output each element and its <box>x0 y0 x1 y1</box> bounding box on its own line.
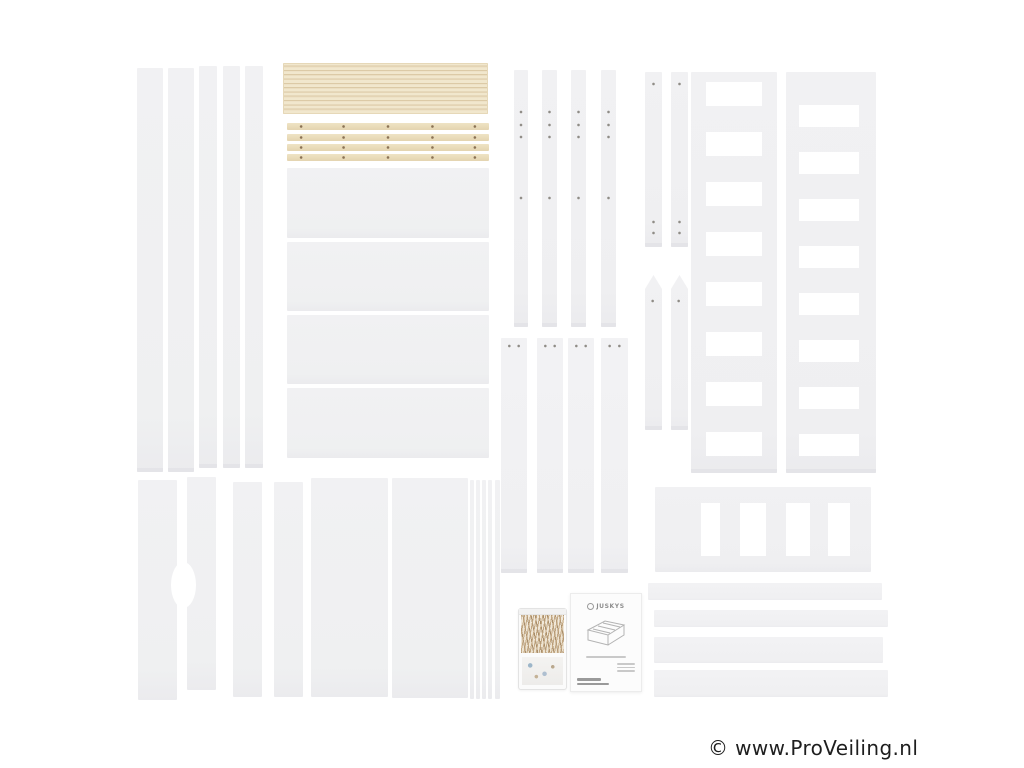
rail-opening <box>740 503 766 556</box>
slat-rail <box>287 123 489 130</box>
oval-grip-cutout <box>171 562 196 608</box>
wide-panel <box>287 388 489 458</box>
watermark-text: © www.ProVeiling.nl <box>708 736 918 760</box>
ladder-opening <box>706 82 762 106</box>
long-board <box>137 68 163 472</box>
rail-opening <box>701 503 720 556</box>
ladder-opening <box>799 387 859 409</box>
narrow-panel <box>274 482 303 697</box>
pointed-batten <box>671 275 688 430</box>
bed-illustration <box>583 614 629 646</box>
short-batten <box>671 72 688 247</box>
bed-post <box>514 70 528 327</box>
short-batten <box>645 72 662 247</box>
ladder-opening <box>799 246 859 268</box>
wide-panel <box>287 315 489 384</box>
slat-rail <box>287 134 489 141</box>
frame-board <box>568 338 594 573</box>
slat-rail <box>287 144 489 151</box>
rail-opening <box>786 503 810 556</box>
narrow-panel <box>233 482 262 697</box>
long-board <box>245 66 263 468</box>
manual-text-line <box>617 670 635 672</box>
ladder-opening <box>706 282 762 306</box>
long-rail <box>654 637 883 663</box>
pointed-batten <box>645 275 662 430</box>
ladder-opening <box>799 293 859 315</box>
ladder-opening <box>706 332 762 356</box>
frame-board <box>537 338 563 573</box>
wide-panel <box>287 242 489 311</box>
ladder-opening <box>799 340 859 362</box>
rail-opening <box>828 503 850 556</box>
panel-edge <box>470 480 474 699</box>
base-panel <box>392 478 468 698</box>
bed-post <box>542 70 557 327</box>
product-photo-canvas: JUSKYS © www.ProVeiling.nl <box>0 0 1024 768</box>
fittings <box>522 657 563 685</box>
manual-footer-line <box>577 683 609 685</box>
ladder-opening <box>799 152 859 174</box>
panel-edge <box>476 480 480 699</box>
long-rail <box>648 583 882 600</box>
screws-bundle <box>521 615 564 653</box>
panel-edge <box>495 480 500 699</box>
bed-slat-stack <box>283 63 488 114</box>
slat-rail <box>287 154 489 161</box>
ladder-opening <box>706 382 762 406</box>
manual-footer-line <box>577 678 601 681</box>
ladder-opening <box>706 232 762 256</box>
ladder-opening <box>799 199 859 221</box>
hardware-bag <box>518 608 567 690</box>
ladder-opening <box>799 434 859 456</box>
ladder-opening <box>799 105 859 127</box>
long-rail <box>654 610 888 627</box>
ladder-opening <box>706 132 762 156</box>
ladder-opening <box>706 432 762 456</box>
long-board <box>199 66 217 468</box>
manual-text-line <box>617 667 635 669</box>
bed-post <box>571 70 586 327</box>
bed-post <box>601 70 616 327</box>
guard-rail <box>655 487 871 572</box>
ladder-frame <box>786 72 876 473</box>
long-rail <box>654 670 888 697</box>
panel-edge <box>488 480 492 699</box>
manual-title-line <box>586 656 626 658</box>
brand-row: JUSKYS <box>571 603 641 610</box>
frame-board <box>601 338 628 573</box>
manual-text-line <box>617 663 635 665</box>
long-board <box>168 68 194 472</box>
brand-label: JUSKYS <box>596 603 624 610</box>
wide-panel <box>287 168 489 238</box>
assembly-manual: JUSKYS <box>570 593 642 692</box>
base-panel <box>311 478 388 697</box>
ladder-frame <box>691 72 777 473</box>
long-board <box>223 66 240 468</box>
panel-edge <box>482 480 486 699</box>
ladder-opening <box>706 182 762 206</box>
juskys-logo-icon <box>587 603 594 610</box>
frame-board <box>501 338 527 573</box>
